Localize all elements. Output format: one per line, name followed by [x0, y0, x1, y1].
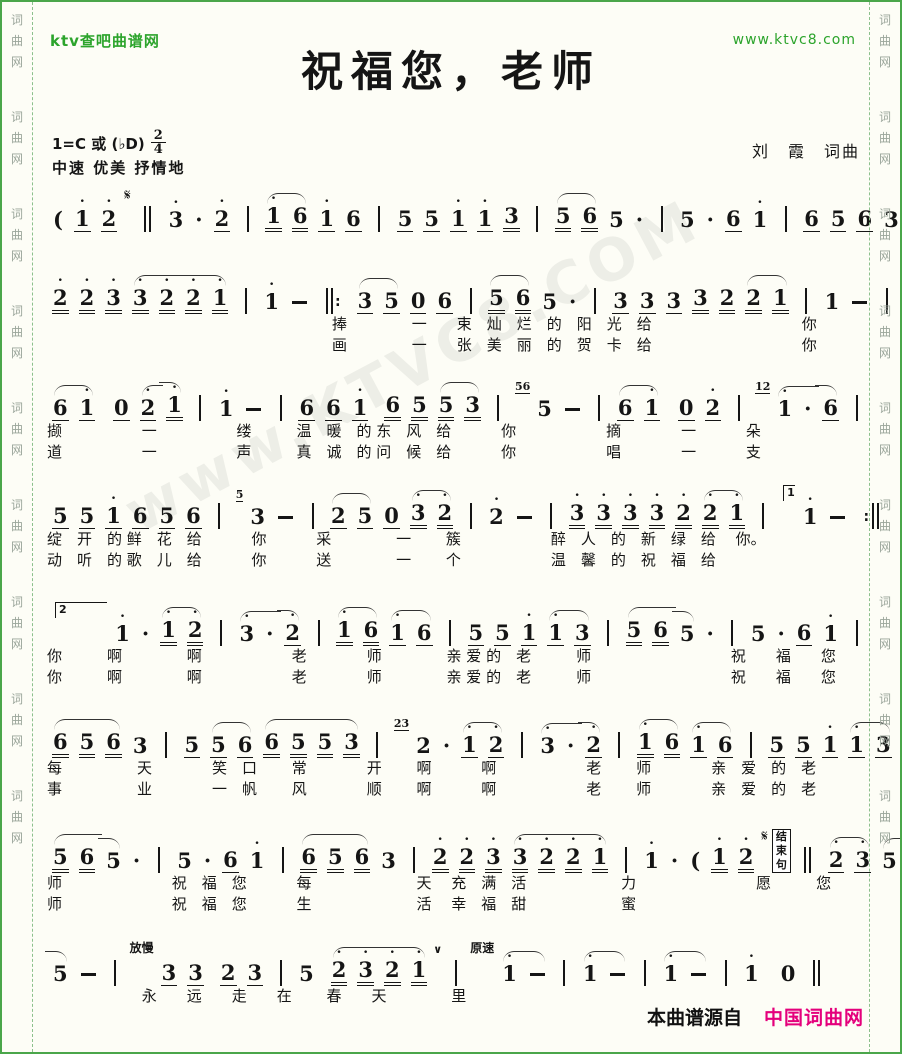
barline [468, 280, 473, 314]
bar-line [809, 847, 811, 873]
barline [496, 387, 501, 421]
note-number: 3 [161, 961, 178, 986]
note-number: 2 [220, 961, 237, 986]
music-system: 6•1 0•2•1•1 6 6•1 6 5 5 356 5 6•1 0•212•… [47, 377, 869, 463]
music-system: (•1•2𝄋•3 ·•2•1 6•1 6 5 5•1•1 3 5 6 5 · 5… [47, 188, 869, 232]
barline [803, 839, 813, 873]
bar-line [856, 620, 858, 646]
note-number: · [670, 849, 679, 873]
bar-line [805, 288, 807, 314]
note: 5 [79, 721, 96, 758]
side-text-char: 网 [11, 731, 23, 752]
side-text-char: 词 [879, 10, 891, 31]
note-number: 5 [468, 621, 485, 646]
note: 2 [719, 277, 736, 314]
note: •1 [637, 721, 654, 758]
note-number: · [803, 397, 812, 421]
note-number: 6 [796, 621, 813, 646]
note: 5 [397, 198, 414, 232]
note-number: 3 [622, 501, 639, 529]
barline [448, 612, 453, 646]
note: 5 [290, 721, 307, 758]
bar-line [738, 395, 740, 421]
note: 0 [113, 387, 130, 421]
note: 3 [132, 725, 149, 758]
note: •2 [828, 839, 845, 873]
duration-dash [850, 281, 869, 314]
note-number: 1 [265, 204, 282, 232]
barline [730, 612, 735, 646]
time-signature-numerator: 2 [154, 129, 163, 142]
note: •1 [318, 198, 335, 232]
key-signature: 1=C 或 (♭D) [52, 133, 145, 154]
octave-dot [835, 496, 841, 505]
note: •3 [569, 492, 586, 529]
slur [578, 722, 600, 733]
note: •3 [132, 277, 149, 314]
note: •1 [644, 387, 661, 421]
octave-dot [283, 496, 289, 505]
side-text-group: 词曲网 [11, 592, 23, 655]
side-text-char: 曲 [879, 613, 891, 634]
bar-line [762, 503, 764, 529]
note-number: 5 [298, 962, 315, 986]
right-margin-strip: 词曲网词曲网词曲网词曲网词曲网词曲网词曲网词曲网词曲网 [869, 2, 900, 1052]
note-number: 6 [325, 396, 342, 421]
note-number: 2 [675, 501, 692, 529]
slur [404, 947, 426, 958]
note: 5 [679, 199, 696, 232]
dash-line [691, 973, 706, 976]
side-text-char: 网 [11, 537, 23, 558]
note: •1 [743, 953, 760, 986]
slur [657, 719, 679, 730]
barline [377, 198, 382, 232]
music-system: 5 6 5 · 5 · 6•1 6 5 6 3•2•2•3•3•2•2•1•1 … [47, 829, 869, 915]
note: 6 [263, 721, 280, 758]
side-text-char: 曲 [879, 128, 891, 149]
note: 2 [415, 725, 432, 758]
note-number: · [706, 208, 715, 232]
note: •2 [488, 724, 505, 758]
barline [280, 839, 285, 873]
note: 5 [52, 953, 69, 986]
note-number: 1 [822, 622, 839, 646]
note-number: 2 [214, 207, 231, 232]
bar-line [331, 288, 333, 314]
side-text-group: 词曲网 [11, 10, 23, 73]
side-text-char: 曲 [11, 710, 23, 731]
dot: · [635, 199, 644, 232]
note: •3 [539, 725, 556, 758]
barline [218, 612, 223, 646]
note-number: · [265, 622, 274, 646]
note-number: 5 [423, 207, 440, 232]
barline [143, 198, 153, 232]
side-text-group: 词曲网 [11, 689, 23, 752]
note-number: 5 [52, 504, 69, 529]
notation-row: (•1•2𝄋•3 ·•2•1 6•1 6 5 5•1•1 3 5 6 5 · 5… [47, 188, 869, 232]
note: 3 [692, 277, 709, 314]
note: 3 [380, 840, 397, 873]
note-number: 1 [848, 733, 865, 758]
note-number: 3 [692, 286, 709, 314]
repeat-dots: : [335, 290, 341, 314]
note: •2 [585, 724, 602, 758]
slur [585, 834, 607, 845]
note: 6 [105, 721, 122, 758]
note: 5 [210, 724, 227, 758]
note: •1 [501, 953, 518, 986]
note-number: 5 [750, 622, 767, 646]
side-text-group: 词曲网 [879, 495, 891, 558]
note-number: 0 [780, 962, 797, 986]
barline [723, 952, 728, 986]
note-number: 2 [565, 845, 582, 873]
note: 2 [745, 277, 762, 314]
note-number: 3 [410, 501, 427, 529]
note: 5 [488, 277, 505, 314]
note-number: 1 [690, 733, 707, 758]
barline [316, 612, 321, 646]
note: 1 [824, 281, 841, 314]
side-text-char: 网 [11, 440, 23, 461]
note-number: 6 [363, 618, 380, 646]
note-number: 6 [354, 845, 371, 873]
bar-line [165, 732, 167, 758]
note: 3 [249, 496, 266, 529]
section-label: 结束句 [772, 829, 791, 873]
bar-line [563, 960, 565, 986]
note-number: 1 [644, 396, 661, 421]
note-number: 5 [768, 733, 785, 758]
note: 5 [327, 836, 344, 873]
dash-line [81, 973, 96, 976]
slur [376, 278, 398, 289]
side-text-char: 词 [879, 592, 891, 613]
slur [847, 837, 869, 848]
note: 3 [187, 952, 204, 986]
notation-row: 2•1 ·•1•2•3 ·•2•1 6•1 6 5 5•1•1 3 5 6 5 … [47, 602, 869, 646]
note-number: 1 [592, 845, 609, 873]
note-number: 3 [132, 286, 149, 314]
note-number: 1 [772, 286, 789, 314]
dash-line [530, 973, 545, 976]
slur [722, 490, 744, 501]
note-number: 6 [52, 396, 69, 421]
footer-site-link[interactable]: 中国词曲网 [764, 1003, 864, 1030]
key-signature-row: 1=C 或 (♭D) 2 4 [52, 129, 166, 157]
bar-line [312, 503, 314, 529]
note-number: 1 [166, 393, 183, 421]
note: 2 [220, 952, 237, 986]
note: •1 [461, 724, 478, 758]
barline [412, 839, 417, 873]
dot: · [706, 613, 715, 646]
note: 5 [438, 384, 455, 421]
note: 3 [464, 384, 481, 421]
note: 5 [750, 613, 767, 646]
slur [350, 493, 372, 504]
bar-line [661, 206, 663, 232]
side-text-char: 网 [11, 828, 23, 849]
note: 6 [52, 721, 69, 758]
note-number: 6 [515, 286, 532, 314]
side-text-char: 词 [879, 689, 891, 710]
side-text-group: 词曲网 [11, 398, 23, 461]
side-text-char: 曲 [879, 710, 891, 731]
lyrics-line-2: 你 啊 啊 老 师 亲 爱 的 老 师 祝 福 您 [47, 667, 869, 688]
note-number: ( [689, 849, 701, 873]
barline [535, 198, 540, 232]
side-text-char: 词 [879, 204, 891, 225]
note-number: 6 [664, 730, 681, 758]
slur [815, 385, 837, 396]
barline [642, 952, 647, 986]
note-number: 6 [581, 204, 598, 232]
side-text-char: 曲 [11, 225, 23, 246]
paren: ( [52, 199, 64, 232]
note: •2 [702, 492, 719, 529]
barline [453, 952, 458, 986]
bar-line [550, 503, 552, 529]
note-number: 2 [705, 396, 722, 421]
note-number: 3 [357, 958, 374, 986]
note: •3 [649, 492, 666, 529]
note: 0 [383, 495, 400, 529]
note: •2 [437, 492, 454, 529]
note-number: · [706, 622, 715, 646]
footer: 本曲谱源自 中国词曲网 [647, 1003, 864, 1030]
side-text-char: 词 [879, 786, 891, 807]
bar-line [282, 847, 284, 873]
note: •1 [166, 384, 183, 421]
bar-line [818, 960, 820, 986]
note: 5 [468, 612, 485, 646]
note: 5 [555, 195, 572, 232]
note-number: 3 [247, 961, 264, 986]
note-number: 3 [649, 501, 666, 529]
note: 0 [678, 387, 695, 421]
barline: : [324, 280, 342, 314]
side-text-char: 网 [879, 537, 891, 558]
notation-row: •2•2•3•3•2•2•1•1 : 3 5 0 6 5 6 5 · 3 3 3… [47, 270, 869, 314]
note-number: 6 [79, 845, 96, 873]
note: •2 [185, 277, 202, 314]
barline [549, 495, 554, 529]
note: 5 [411, 384, 428, 421]
note: 6 [292, 195, 309, 232]
slur [409, 610, 431, 621]
bar-line [731, 620, 733, 646]
note: •1 [711, 836, 728, 873]
note-number: 5 [608, 208, 625, 232]
note-number: 2 [738, 845, 755, 873]
footer-source-label: 本曲谱源自 [647, 1003, 742, 1030]
song-title: 祝福您，老师 [2, 38, 900, 99]
note-number: 3 [574, 621, 591, 646]
bar-line [318, 620, 320, 646]
dash-line [517, 516, 532, 519]
notation-row: 5 5•1 6 5 65 3 2 5 0•3•2•2 •3•3•3•3•2•2•… [47, 485, 869, 529]
note-number: 3 [187, 961, 204, 986]
note-number: 2 [702, 501, 719, 529]
note-number: · [141, 622, 150, 646]
note: 6 [725, 198, 742, 232]
bar-line [158, 847, 160, 873]
left-vertical-site-text: 词曲网词曲网词曲网词曲网词曲网词曲网词曲网词曲网词曲网 [2, 2, 32, 883]
note-number: 5 [79, 504, 96, 529]
bar-line [470, 503, 472, 529]
sheet-music-page: 词曲网词曲网词曲网词曲网词曲网词曲网词曲网词曲网词曲网 词曲网词曲网词曲网词曲网… [0, 0, 902, 1054]
note-number: 1 [824, 290, 841, 314]
note-number: 0 [678, 396, 695, 421]
note-number: · [194, 208, 203, 232]
notation-row: 6•1 0•2•1•1 6 6•1 6 5 5 356 5 6•1 0•212•… [47, 377, 869, 421]
note-number: 5 [830, 207, 847, 232]
note-number: 6 [725, 207, 742, 232]
bar-line [449, 620, 451, 646]
note-number: 0 [113, 396, 130, 421]
octave-dot [85, 953, 91, 962]
dot: · [194, 199, 203, 232]
music-system: 5 放慢 3 3 2 3 5•2•3•2•1∨原速•1 •1 •1 •1 0 永… [47, 942, 869, 1007]
note: 6 [52, 387, 69, 421]
note-number: 6 [222, 848, 239, 873]
note-number: 5 [679, 208, 696, 232]
note: 6 [515, 277, 532, 314]
bar-line [413, 847, 415, 873]
slur [98, 719, 120, 730]
slur [637, 385, 659, 396]
barline [278, 387, 283, 421]
note: •3 [168, 199, 185, 232]
note-number: 5 [555, 204, 572, 232]
slur [45, 951, 67, 962]
lyrics-line-1: 每 天 笑 口 常 开 啊 啊 老 师 亲 爱 的 老 [47, 758, 869, 779]
bar-line [594, 288, 596, 314]
tempo-mark: 原速 [470, 942, 494, 955]
side-text-char: 词 [879, 301, 891, 322]
notation-row: 5 放慢 3 3 2 3 5•2•3•2•1∨原速•1 •1 •1 •1 0 [47, 942, 869, 986]
barline [854, 387, 859, 421]
side-text-char: 曲 [879, 516, 891, 537]
score: (•1•2𝄋•3 ·•2•1 6•1 6 5 5•1•1 3 5 6 5 · 5… [47, 182, 869, 1007]
note-number: 1 [336, 618, 353, 646]
bar-line [644, 960, 646, 986]
note: 5 [52, 836, 69, 873]
side-text-char: 曲 [879, 31, 891, 52]
note: 6 [384, 384, 401, 421]
note-number: 3 [666, 289, 683, 314]
side-text-char: 曲 [879, 225, 891, 246]
note: •2 [331, 949, 348, 986]
slur [336, 719, 358, 730]
slur [205, 275, 227, 286]
dot: · [442, 725, 451, 758]
note: 6 [664, 721, 681, 758]
barline [562, 952, 567, 986]
octave-dot [297, 281, 303, 290]
note: •1 [802, 496, 819, 529]
note: •3 [485, 836, 502, 873]
side-text-char: 网 [11, 246, 23, 267]
note: •2 [159, 277, 176, 314]
slur [682, 951, 706, 962]
notation-row: 6 5 6 3 5 5 6 6 5 5 323 2 ·•1•2•3 ·•2•1 … [47, 714, 869, 758]
note: •2 [432, 836, 449, 873]
note: 5 [423, 198, 440, 232]
note-number: 5 [397, 207, 414, 232]
note: •1 [662, 953, 679, 986]
note: •3 [357, 949, 374, 986]
bar-line [378, 206, 380, 232]
barline [519, 724, 524, 758]
note-number: 6 [185, 504, 202, 529]
note-number: 6 [803, 207, 820, 232]
note-number: 5 [541, 290, 558, 314]
note: 3 [666, 280, 683, 314]
duration-dash [528, 953, 547, 986]
note: 5 [830, 198, 847, 232]
note: 6 [237, 724, 254, 758]
note: •3 [238, 613, 255, 646]
note-number: 2 [159, 286, 176, 314]
bar-line [114, 960, 116, 986]
note: 5 [494, 612, 511, 646]
note: 5 [768, 724, 785, 758]
note-number: · [635, 208, 644, 232]
note: •1 [249, 840, 266, 873]
side-text-char: 曲 [11, 613, 23, 634]
note: •1 [643, 840, 660, 873]
barline [468, 495, 473, 529]
side-text-group: 词曲网 [879, 107, 891, 170]
note: 6 [345, 198, 362, 232]
note-number: · [442, 734, 451, 758]
barline [113, 952, 118, 986]
side-text-group: 词曲网 [879, 689, 891, 752]
side-text-char: 词 [879, 495, 891, 516]
time-signature: 2 4 [151, 129, 166, 157]
side-text-char: 网 [879, 634, 891, 655]
tempo-text: 中速 优美 抒情地 [52, 157, 185, 178]
bar-line [785, 206, 787, 232]
bar-line [598, 395, 600, 421]
slur [277, 610, 299, 621]
bar-line [245, 288, 247, 314]
note-number: 3 [485, 845, 502, 873]
note-number: 1 [411, 958, 428, 986]
note: •2 [675, 492, 692, 529]
note-number: 1 [74, 207, 91, 232]
note: •1 [822, 724, 839, 758]
bar-line [536, 206, 538, 232]
barline [736, 387, 741, 421]
note-number: 1 [79, 396, 96, 421]
note: •1 [547, 612, 564, 646]
note-number: 1 [521, 621, 538, 646]
duration-dash [290, 281, 309, 314]
duration-dash [689, 953, 708, 986]
note: 3 [161, 952, 178, 986]
side-text-group: 词曲网 [879, 204, 891, 267]
note: •1 [336, 609, 353, 646]
note: •2 [384, 949, 401, 986]
note: •1 [263, 281, 280, 314]
note: 5 [626, 609, 643, 646]
side-text-char: 网 [11, 634, 23, 655]
